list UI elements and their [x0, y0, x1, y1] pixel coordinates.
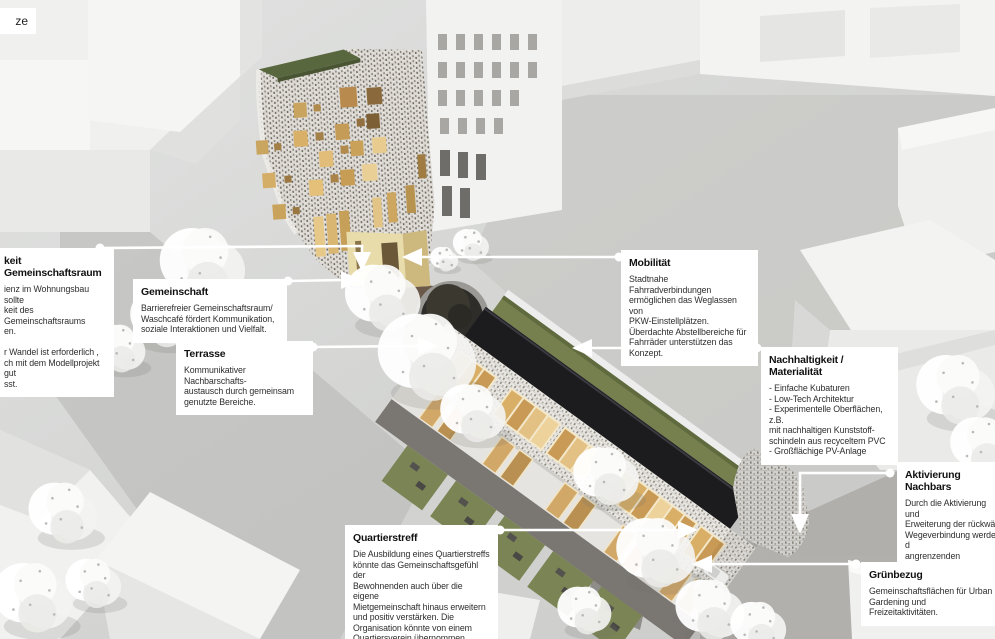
callout-title: Mobilität: [629, 257, 750, 269]
callout-body: Kommunikativer Nachbarschafts- austausch…: [184, 365, 305, 407]
callout-gruenbezug: Grünbezug Gemeinschaftsflächen für Urban…: [861, 562, 995, 626]
callout-title: Nachhaltigkeit / Materialität: [769, 354, 890, 378]
callout-body: Barrierefreier Gemeinschaftsraum/ Waschc…: [141, 303, 279, 335]
callout-body: Die Ausbildung eines Quartierstreffs kön…: [353, 549, 490, 639]
corner-label: ze: [0, 8, 36, 34]
callout-terrasse: Terrasse Kommunikativer Nachbarschafts- …: [176, 341, 313, 415]
callout-title: Gemeinschaft: [141, 286, 279, 298]
callout-title: Quartierstreff: [353, 532, 490, 544]
leader-dot-icon: [886, 469, 895, 478]
callout-title: Terrasse: [184, 348, 305, 360]
callout-title: Aktivierung Nachbars: [905, 469, 995, 493]
callout-body: Stadtnahe Fahrradverbindungen ermögliche…: [629, 274, 750, 358]
callout-title: Grünbezug: [869, 569, 993, 581]
corner-label-text: ze: [15, 14, 28, 28]
callout-nachhaltigkeit: Nachhaltigkeit / Materialität - Einfache…: [761, 347, 898, 465]
callout-body: Gemeinschaftsflächen für Urban Gardening…: [869, 586, 993, 618]
callout-gemeinschaftsraum: keit Gemeinschaftsraum ienz im Wohnungsb…: [0, 248, 114, 397]
callout-quartierstreff: Quartierstreff Die Ausbildung eines Quar…: [345, 525, 498, 639]
leader-dot-icon: [852, 560, 861, 569]
callout-body: ienz im Wohnungsbau sollte keit des Geme…: [4, 284, 106, 389]
callout-gemeinschaft: Gemeinschaft Barrierefreier Gemeinschaft…: [133, 279, 287, 343]
callout-body: - Einfache Kubaturen - Low-Tech Architek…: [769, 383, 890, 457]
architecture-rendering: ze keit Gemeinschaftsraum ienz im Wohnun…: [0, 0, 995, 639]
callout-title: keit Gemeinschaftsraum: [4, 255, 106, 279]
callout-mobilitaet: Mobilität Stadtnahe Fahrradverbindungen …: [621, 250, 758, 366]
